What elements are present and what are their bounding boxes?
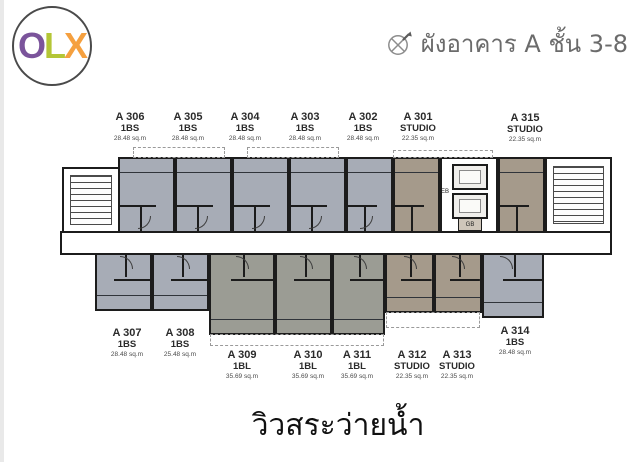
floor-plan: EB GB [0, 0, 640, 462]
balcony-outline [210, 334, 384, 346]
unit-room-a315 [498, 157, 545, 233]
balcony-outline [386, 312, 480, 328]
unit-room-a301 [393, 157, 440, 233]
balcony-outline [393, 150, 493, 158]
core-gb-room: GB [458, 218, 482, 231]
corridor [60, 231, 612, 255]
balcony-outline [247, 147, 339, 158]
elevator-shaft-2 [452, 193, 488, 219]
core-gb-label: GB [466, 222, 475, 228]
stairs-left-icon [70, 175, 112, 225]
view-caption: วิวสระว่ายน้ำ [18, 402, 640, 449]
stairs-right-icon [553, 166, 604, 224]
balcony-outline [133, 147, 225, 158]
unit-room-a314 [482, 253, 544, 318]
elevator-shaft-1 [452, 164, 488, 190]
core-eb-label: EB [441, 189, 449, 195]
